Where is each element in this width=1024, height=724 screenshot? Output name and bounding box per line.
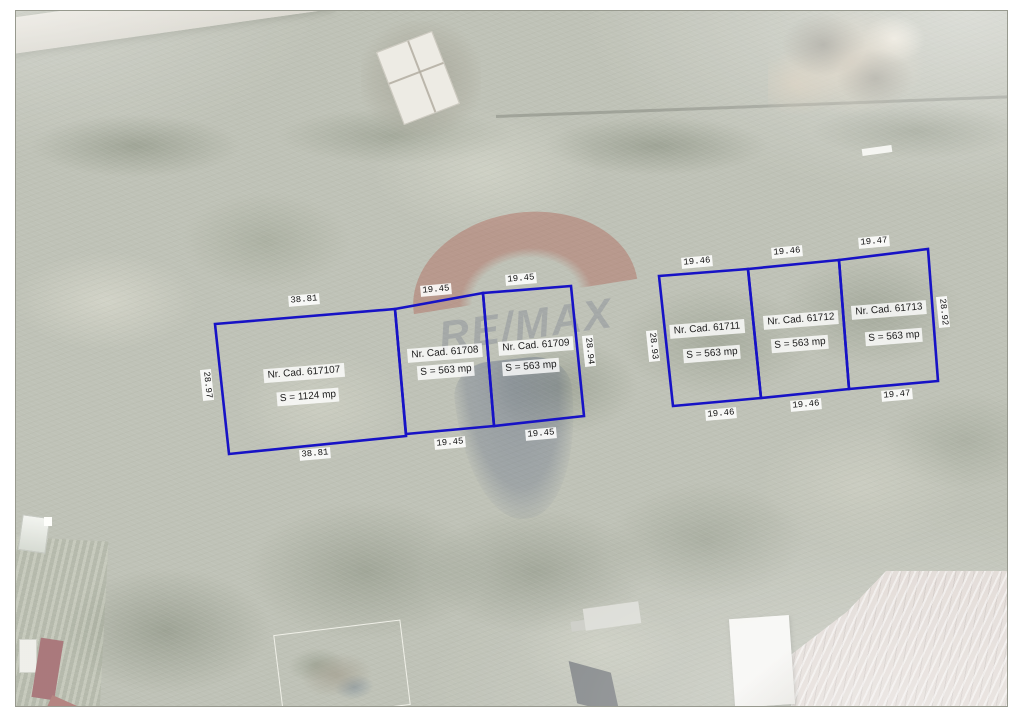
aerial-map-canvas: RE/MAX N 38.81 38.81 28.97 19.45 19.45 1…	[15, 10, 1008, 707]
parcel-boundaries	[16, 11, 1007, 706]
parcel-polygon-617107	[215, 309, 406, 454]
cadastral-plan-page: RE/MAX N 38.81 38.81 28.97 19.45 19.45 1…	[0, 0, 1024, 724]
